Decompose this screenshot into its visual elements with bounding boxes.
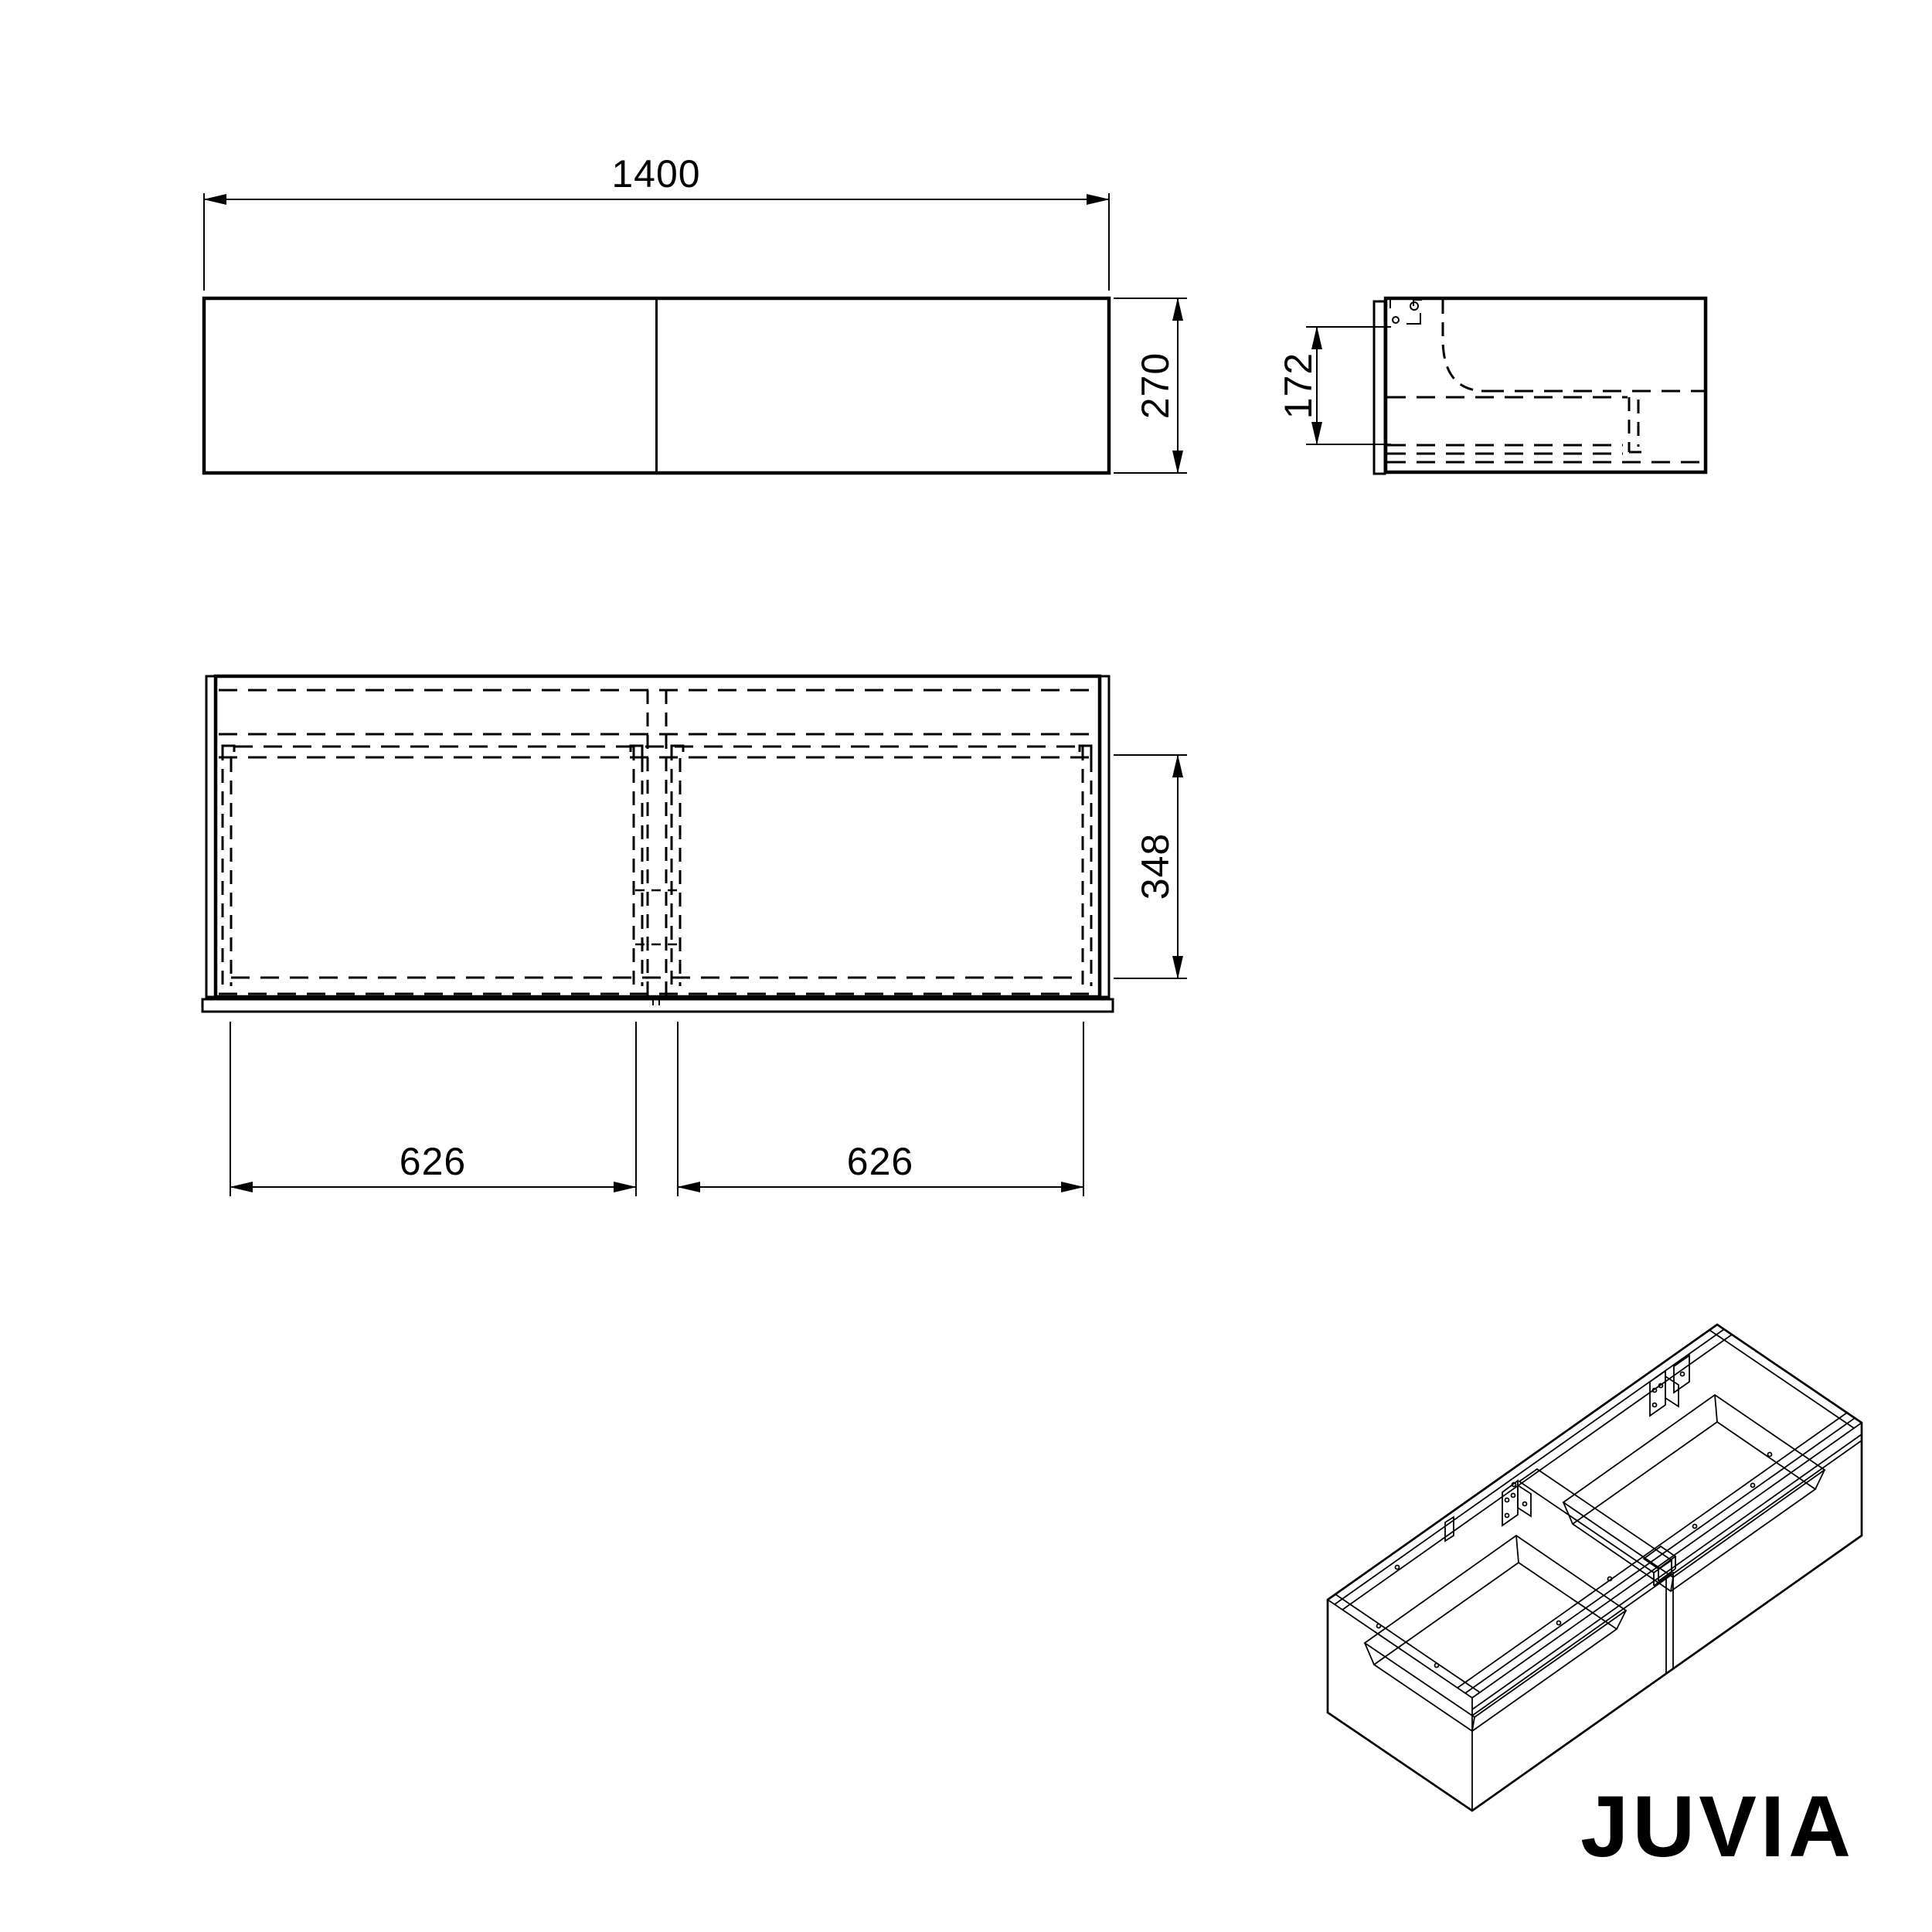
screw-dots [1377,1453,1772,1668]
dim-label-626-left: 626 [400,1140,466,1183]
back-wall-bracket [1650,1355,1689,1416]
isometric-view [1328,1325,1862,1811]
dimension-drawer-right-626: 626 [678,1022,1083,1196]
dimension-height-270: 270 [1114,298,1187,473]
drawing-sheet: 1400 270 172 [0,0,1932,1932]
dim-label-270: 270 [1134,352,1177,419]
dim-label-172: 172 [1277,352,1320,419]
fastener-detail [1390,299,1422,324]
dim-label-626-right: 626 [847,1140,913,1183]
front-view [204,298,1109,473]
side-view [1374,298,1706,474]
dimension-drawer-left-626: 626 [230,1022,636,1196]
dimension-depth-348: 348 [1114,755,1187,978]
brand-wordmark: JUVIA [1580,1778,1855,1875]
technical-drawing: 1400 270 172 [0,0,1932,1932]
dimension-width-1400: 1400 [204,152,1109,291]
plan-view [202,676,1113,1012]
dim-label-348: 348 [1134,833,1177,900]
dim-label-1400: 1400 [611,152,700,196]
front-edge-strip [202,999,1113,1012]
